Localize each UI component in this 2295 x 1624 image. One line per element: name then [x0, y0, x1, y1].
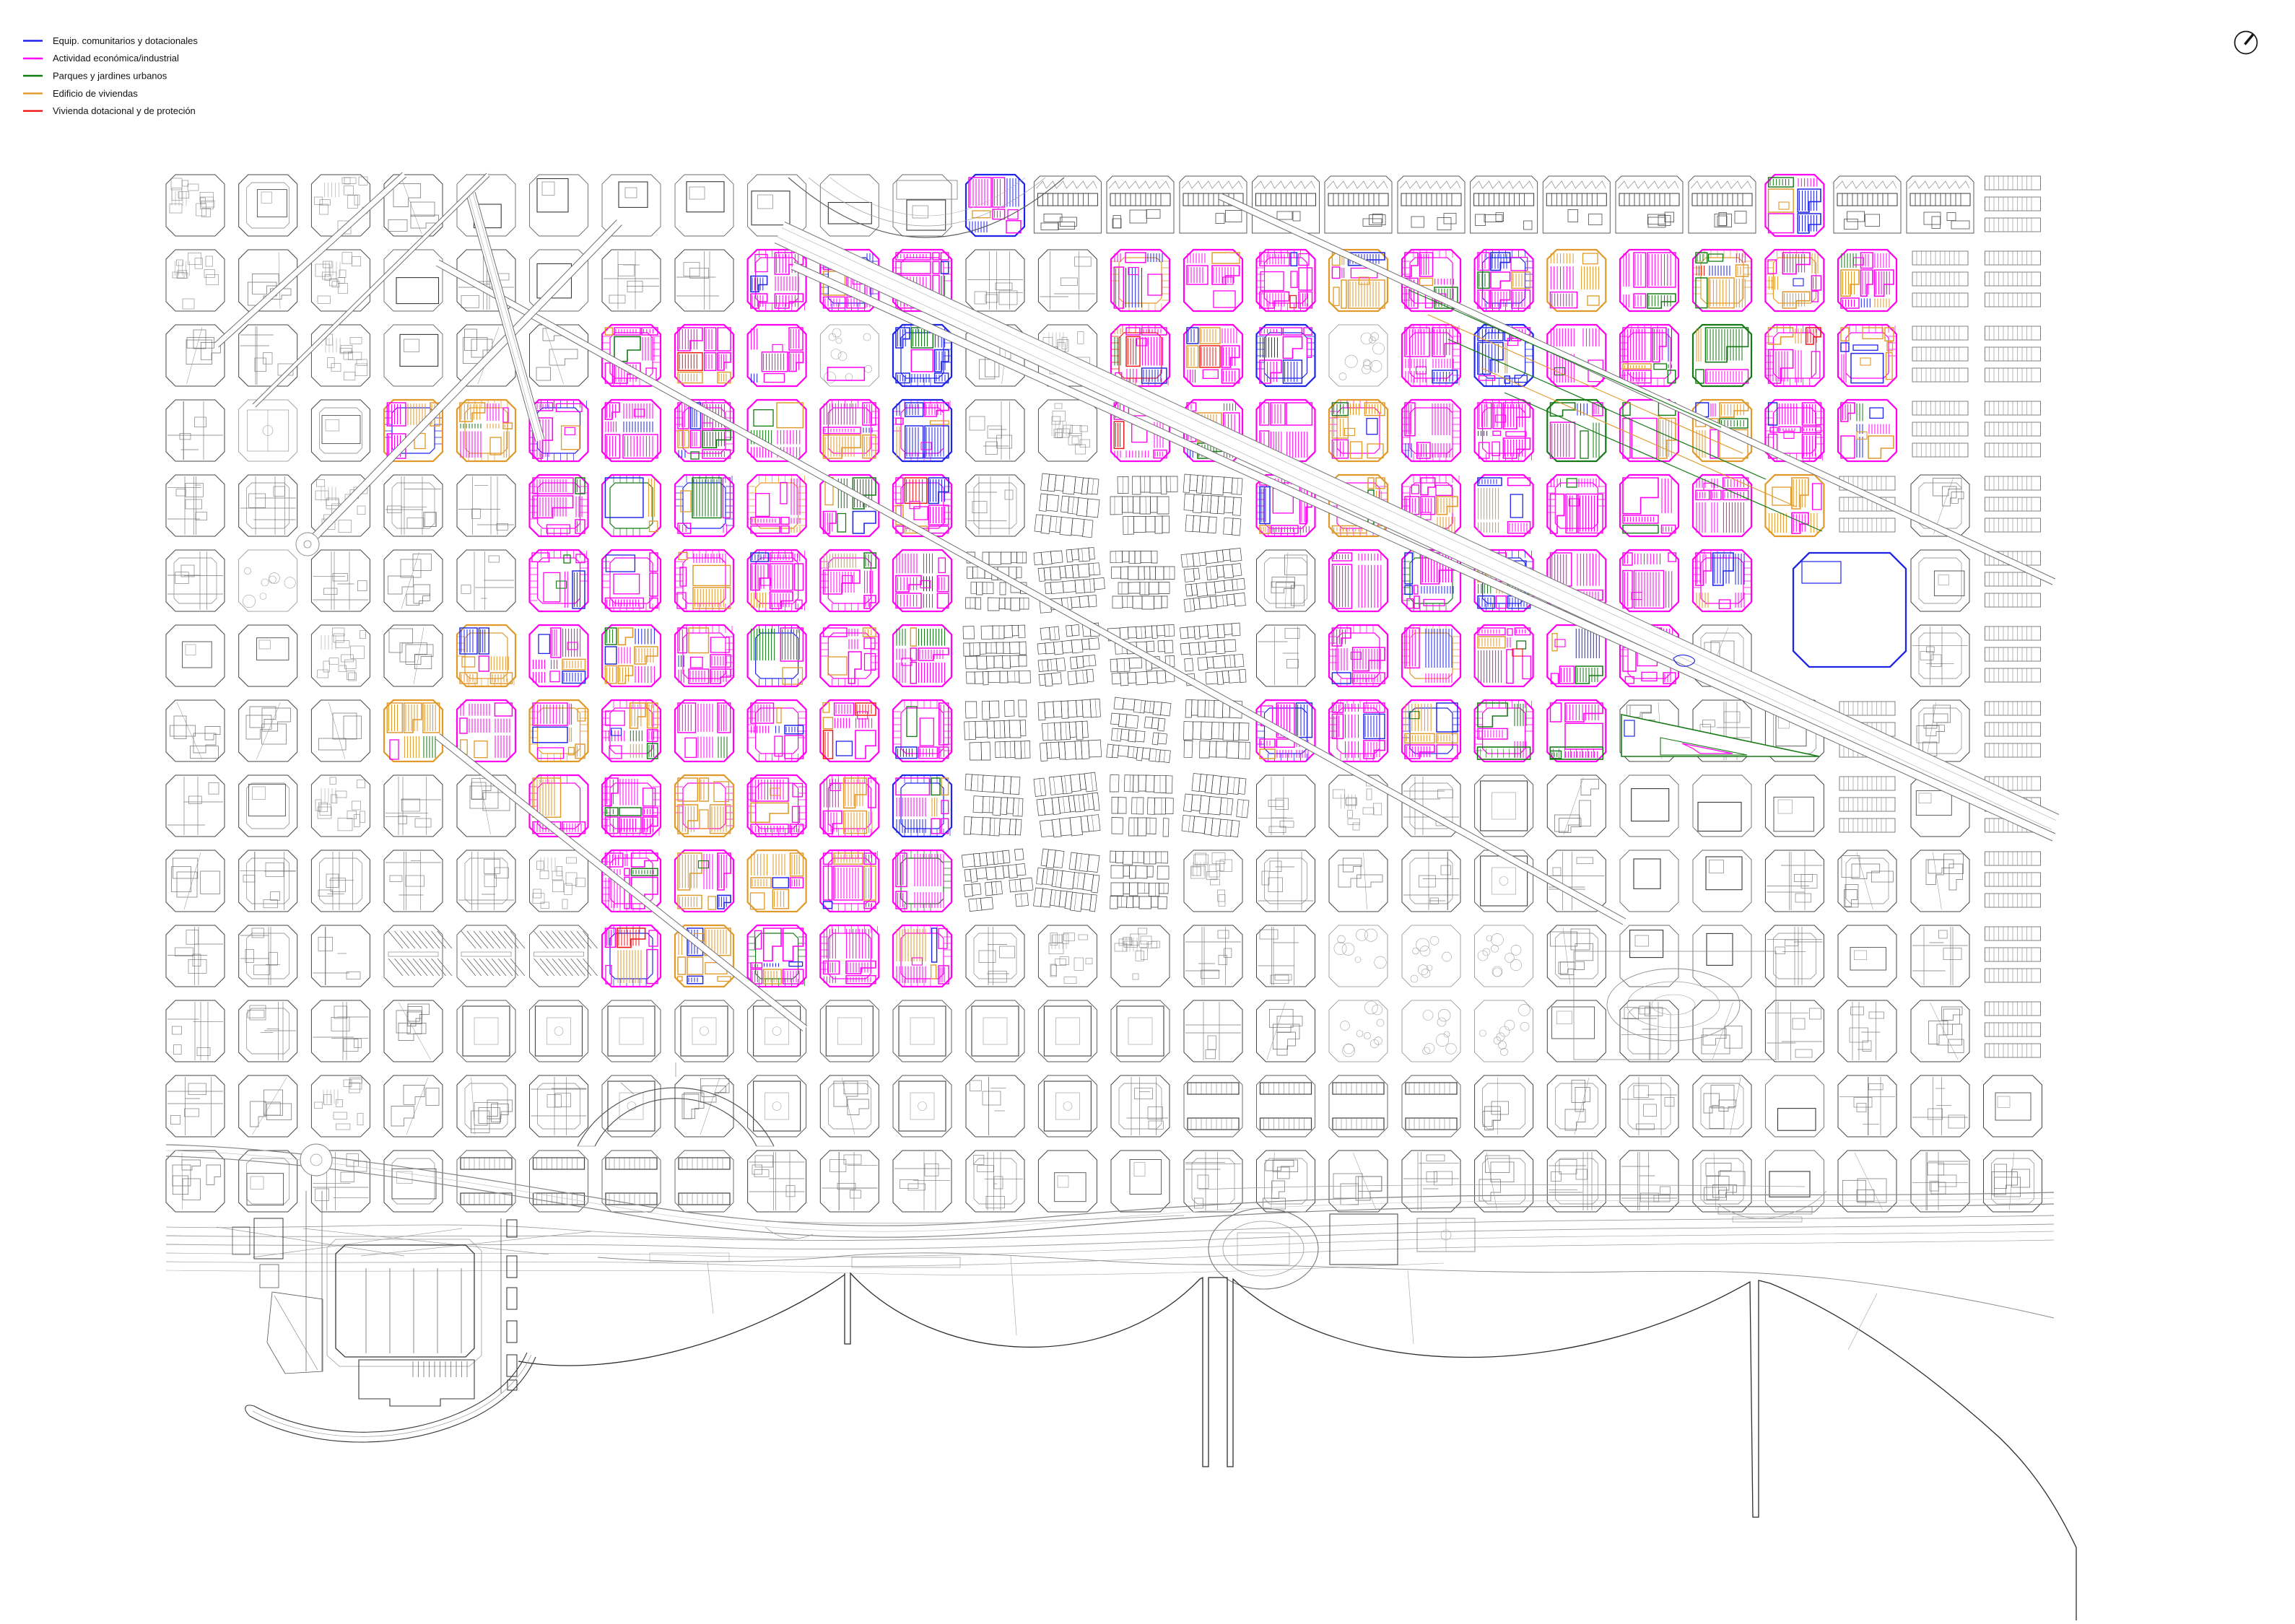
svg-text:Equip. comunitarios y dotacion: Equip. comunitarios y dotacionales: [53, 35, 198, 46]
svg-text:Edificio de viviendas: Edificio de viviendas: [53, 88, 138, 99]
svg-text:Actividad económica/industrial: Actividad económica/industrial: [53, 53, 179, 64]
svg-text:Parques y jardines urbanos: Parques y jardines urbanos: [53, 71, 167, 82]
svg-text:Vivienda dotacional y de prote: Vivienda dotacional y de proteción: [53, 105, 196, 116]
